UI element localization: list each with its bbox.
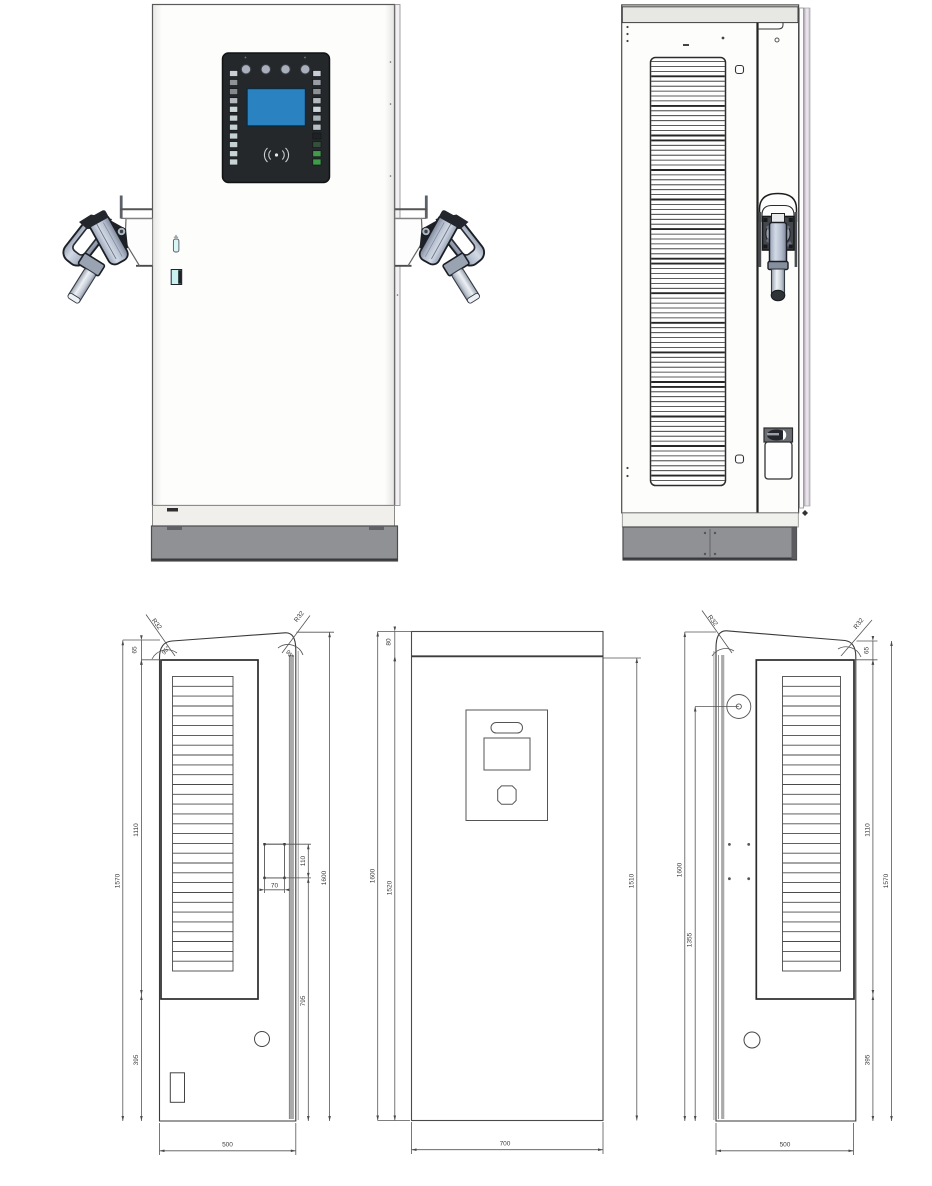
svg-text:1600: 1600 bbox=[676, 862, 683, 877]
svg-text:1520: 1520 bbox=[386, 880, 393, 895]
svg-text:70: 70 bbox=[271, 882, 279, 889]
svg-text:1110: 1110 bbox=[133, 823, 140, 837]
svg-text:500: 500 bbox=[780, 1142, 791, 1149]
svg-text:1570: 1570 bbox=[115, 873, 122, 888]
svg-text:65: 65 bbox=[863, 647, 870, 655]
svg-text:1600: 1600 bbox=[321, 870, 328, 885]
svg-text:700: 700 bbox=[500, 1140, 511, 1147]
svg-text:1600: 1600 bbox=[369, 868, 376, 883]
svg-text:395: 395 bbox=[864, 1054, 871, 1065]
svg-text:1355: 1355 bbox=[687, 932, 694, 947]
svg-text:110: 110 bbox=[300, 855, 307, 866]
svg-text:1570: 1570 bbox=[883, 873, 890, 888]
svg-text:395: 395 bbox=[133, 1054, 140, 1065]
svg-text:1110: 1110 bbox=[864, 823, 871, 837]
svg-text:1510: 1510 bbox=[628, 873, 635, 888]
svg-text:80: 80 bbox=[385, 638, 392, 646]
svg-text:500: 500 bbox=[222, 1142, 233, 1149]
svg-text:R32: R32 bbox=[853, 617, 866, 631]
svg-text:65: 65 bbox=[132, 646, 139, 654]
svg-text:R32: R32 bbox=[293, 610, 306, 624]
svg-text:R32: R32 bbox=[706, 614, 719, 628]
svg-text:795: 795 bbox=[300, 995, 307, 1006]
svg-text:R32: R32 bbox=[150, 617, 163, 631]
